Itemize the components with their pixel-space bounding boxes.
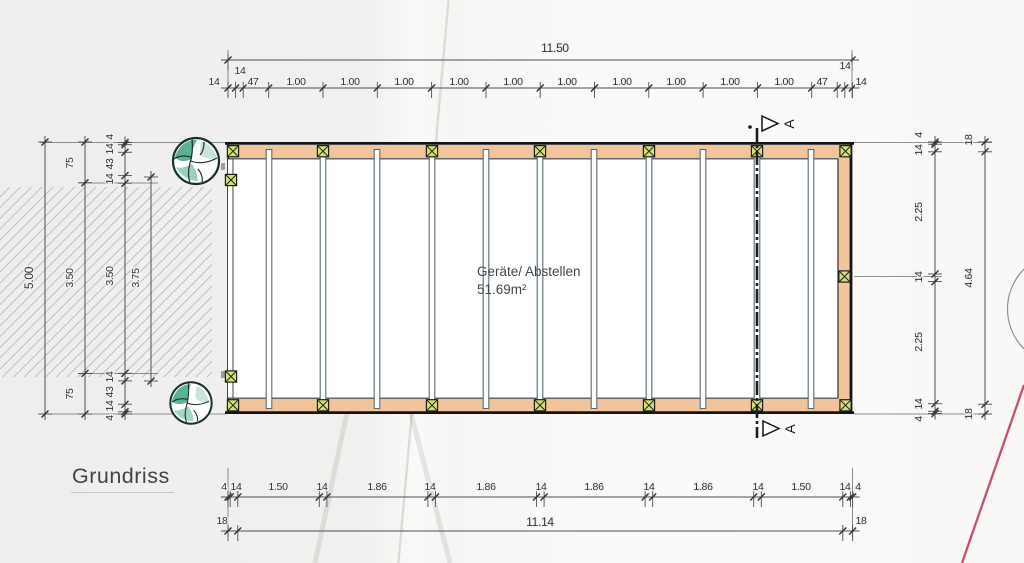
room-area: 51.69m² [477, 281, 581, 299]
dim-label: 1.86 [476, 481, 496, 493]
dim-label: 4.64 [963, 268, 975, 288]
dim-label: 4 [855, 481, 861, 493]
dim-label: 1.00 [612, 76, 632, 88]
dim-chain-horizontal [221, 491, 860, 507]
section-label-top: A [781, 119, 797, 129]
top-dimension-labels: 11.50 14 14 14 47 1.00 1.00 1.00 1.00 1.… [208, 41, 867, 88]
dim-label: 1.86 [584, 481, 604, 493]
dim-label: 4 [913, 416, 925, 422]
dim-label: 14 [855, 76, 867, 88]
left-edge-nub-top [221, 163, 225, 170]
post-symbol [840, 146, 851, 157]
post-symbol [840, 400, 851, 411]
dim-label: 18 [216, 515, 228, 527]
room-label: Geräte/ Abstellen 51.69m² [477, 263, 581, 299]
dim-label: 14 [913, 398, 925, 410]
dim-chain-horizontal [221, 82, 859, 98]
post-symbol [227, 146, 238, 157]
rafter [808, 150, 814, 409]
post-symbol [643, 146, 654, 157]
dim-chain-vertical [928, 136, 942, 420]
dim-label: 4 [104, 415, 116, 421]
section-marker-dot [748, 125, 752, 129]
dim-bottom-total: 11.14 [526, 515, 554, 529]
dim-label: 14 [913, 144, 925, 156]
post-symbol [426, 400, 437, 411]
dim-label: 4 [913, 132, 925, 138]
dim-label: 14 [104, 173, 116, 185]
section-label-bottom: A [782, 424, 798, 434]
dim-label: 4 [104, 134, 116, 140]
dim-label: 1.00 [720, 76, 740, 88]
dim-label: 1.00 [557, 76, 577, 88]
post-symbol [534, 400, 545, 411]
dim-chain-vertical [144, 171, 158, 387]
adjacent-drawing-circle-arc [1008, 253, 1024, 366]
dim-label: 14 [104, 400, 116, 412]
tree-symbol-top [173, 138, 219, 184]
dim-label: 14 [839, 60, 851, 72]
dim-label: 43 [104, 158, 116, 170]
dim-label: 14 [913, 271, 925, 283]
dim-label: 4 [221, 481, 227, 493]
dim-label: 18 [855, 515, 867, 527]
post-symbol [426, 146, 437, 157]
dim-label: 1.00 [449, 76, 469, 88]
dim-label: 1.00 [286, 76, 306, 88]
post-symbol [225, 371, 236, 382]
rafter [374, 150, 380, 409]
dim-label: 1.00 [394, 76, 414, 88]
dim-label: 14 [752, 481, 764, 493]
room-name: Geräte/ Abstellen [477, 263, 581, 281]
section-arrow-bottom [763, 421, 779, 436]
dim-label: 1.50 [268, 481, 288, 493]
dim-label: 1.00 [774, 76, 794, 88]
dim-label: 1.86 [693, 481, 713, 493]
rafter [700, 150, 706, 409]
dim-label: 14 [104, 371, 116, 383]
dim-label: 14 [535, 481, 547, 493]
dim-label: 14 [424, 481, 436, 493]
dim-label: 14 [230, 481, 242, 493]
dim-chain-vertical [78, 136, 92, 420]
dim-top-total: 11.50 [541, 41, 569, 55]
scanned-floor-plan-sheet: A A 11.50 14 14 14 47 1.00 1.00 [0, 0, 1024, 563]
post-symbol [317, 146, 328, 157]
dim-label: 2.25 [913, 332, 925, 352]
right-dimension-labels: 4 14 2.25 14 2.25 14 4 18 4.64 18 [913, 132, 975, 422]
dim-label: 14 [234, 65, 246, 77]
post-symbol [225, 174, 236, 185]
dim-label: 75 [64, 157, 76, 169]
post-symbol [534, 146, 545, 157]
dim-label: 75 [64, 388, 76, 400]
dim-label: 43 [104, 386, 116, 398]
post-symbol [643, 400, 654, 411]
dim-label: 1.00 [503, 76, 523, 88]
dim-label: 47 [816, 76, 828, 88]
rafter [320, 150, 326, 409]
dim-chain-vertical [38, 136, 52, 420]
dim-label: 14 [643, 481, 655, 493]
post-symbol [839, 271, 850, 282]
rafter [591, 150, 597, 409]
section-arrow-top [762, 116, 778, 131]
dim-label: 14 [839, 481, 851, 493]
dim-chain-horizontal [221, 54, 859, 70]
bottom-dimension-labels: 4 14 1.50 14 1.86 14 1.86 14 1.86 14 1.8… [216, 481, 867, 529]
dim-label: 1.50 [791, 481, 811, 493]
dim-label: 14 [104, 143, 116, 155]
drawing-title: Grundriss [71, 464, 174, 493]
dim-label: 2.25 [913, 202, 925, 222]
dim-chain-vertical [978, 136, 992, 420]
dim-label: 1.86 [367, 481, 387, 493]
rafter [429, 150, 435, 409]
dim-left-total: 5.00 [22, 266, 36, 289]
post-symbol [317, 400, 328, 411]
dim-label: 18 [963, 134, 975, 146]
dim-label: 1.00 [340, 76, 360, 88]
left-edge-beam [228, 159, 234, 398]
dim-label: 3.50 [104, 266, 116, 286]
dim-label: 3.50 [64, 268, 76, 288]
rafter [646, 150, 652, 409]
rafter [266, 150, 272, 409]
left-edge-nub-bottom [221, 371, 225, 378]
dim-left-inner: 3.75 [130, 268, 142, 288]
dim-label: 14 [316, 481, 328, 493]
dim-label: 47 [247, 76, 259, 88]
dim-label: 14 [208, 76, 220, 88]
tree-symbol-bottom [170, 382, 211, 423]
post-symbol [227, 400, 238, 411]
dim-label: 1.00 [666, 76, 686, 88]
dim-label: 18 [963, 408, 975, 420]
